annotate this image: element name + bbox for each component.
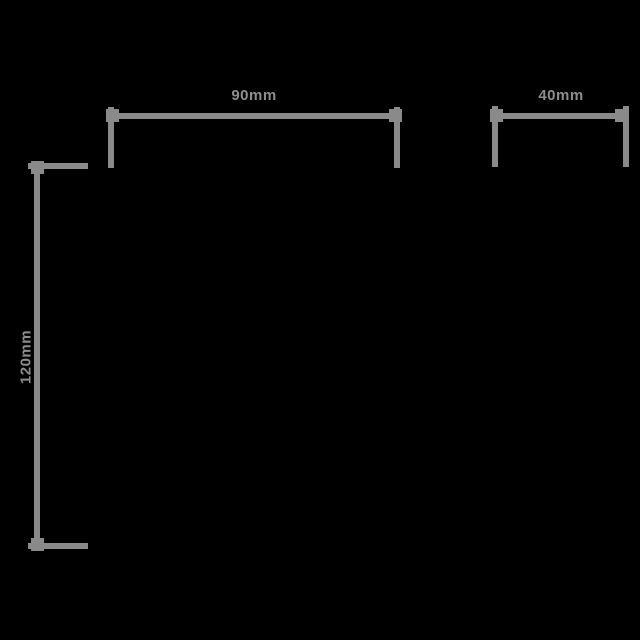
dimension-line-height (34, 165, 40, 549)
dimension-label-top-width: 90mm (110, 88, 398, 103)
dimension-line-side-width (495, 113, 627, 119)
dimension-junction-nub (615, 109, 628, 122)
dimension-diagram: 90mm 40mm 120mm (0, 0, 640, 640)
dimension-junction-nub (389, 109, 402, 122)
dimension-label-height: 120mm (19, 330, 34, 384)
dimension-junction-nub (490, 109, 503, 122)
dimension-junction-nub (106, 109, 119, 122)
dimension-line-top-width (110, 113, 398, 119)
dimension-junction-nub (31, 538, 44, 551)
dimension-junction-nub (31, 161, 44, 174)
dimension-label-side-width: 40mm (495, 88, 627, 103)
